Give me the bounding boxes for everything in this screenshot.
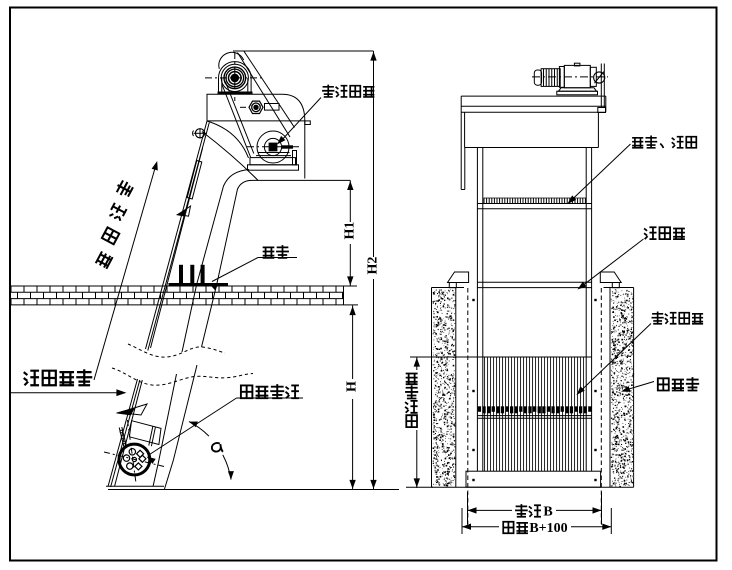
svg-text:B: B xyxy=(543,505,552,520)
svg-text:B+100: B+100 xyxy=(529,521,567,536)
svg-text:H2: H2 xyxy=(366,257,381,275)
svg-text:H: H xyxy=(345,381,360,392)
svg-text:H1: H1 xyxy=(343,222,358,240)
